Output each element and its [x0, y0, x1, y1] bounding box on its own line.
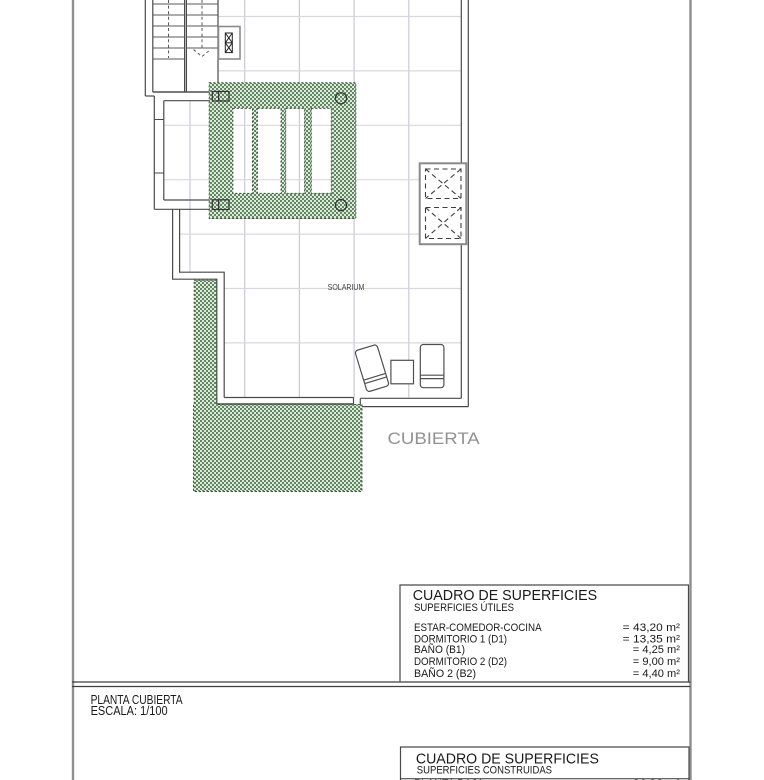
- svg-text:SUPERFICIES ÚTILES: SUPERFICIES ÚTILES: [414, 601, 514, 614]
- svg-text:= 4,40 m²: = 4,40 m²: [633, 668, 681, 680]
- svg-text:CUBIERTA: CUBIERTA: [388, 430, 480, 448]
- svg-text:SUPERFICIES CONSTRUIDAS: SUPERFICIES CONSTRUIDAS: [417, 765, 552, 777]
- svg-text:= 9,00 m²: = 9,00 m²: [633, 656, 681, 668]
- svg-text:SOLARIUM: SOLARIUM: [328, 282, 365, 292]
- svg-text:BAÑO 2 (B2): BAÑO 2 (B2): [414, 667, 476, 680]
- svg-text:BAÑO (B1): BAÑO (B1): [414, 643, 465, 656]
- svg-text:ESCALA: 1/100: ESCALA: 1/100: [91, 703, 168, 718]
- svg-text:ESTAR-COMEDOR-COCINA: ESTAR-COMEDOR-COCINA: [414, 622, 542, 634]
- svg-text:= 4,25 m²: = 4,25 m²: [633, 644, 681, 656]
- svg-text:= 43,20 m²: = 43,20 m²: [623, 622, 681, 634]
- svg-text:DORMITORIO 2 (D2): DORMITORIO 2 (D2): [414, 656, 507, 668]
